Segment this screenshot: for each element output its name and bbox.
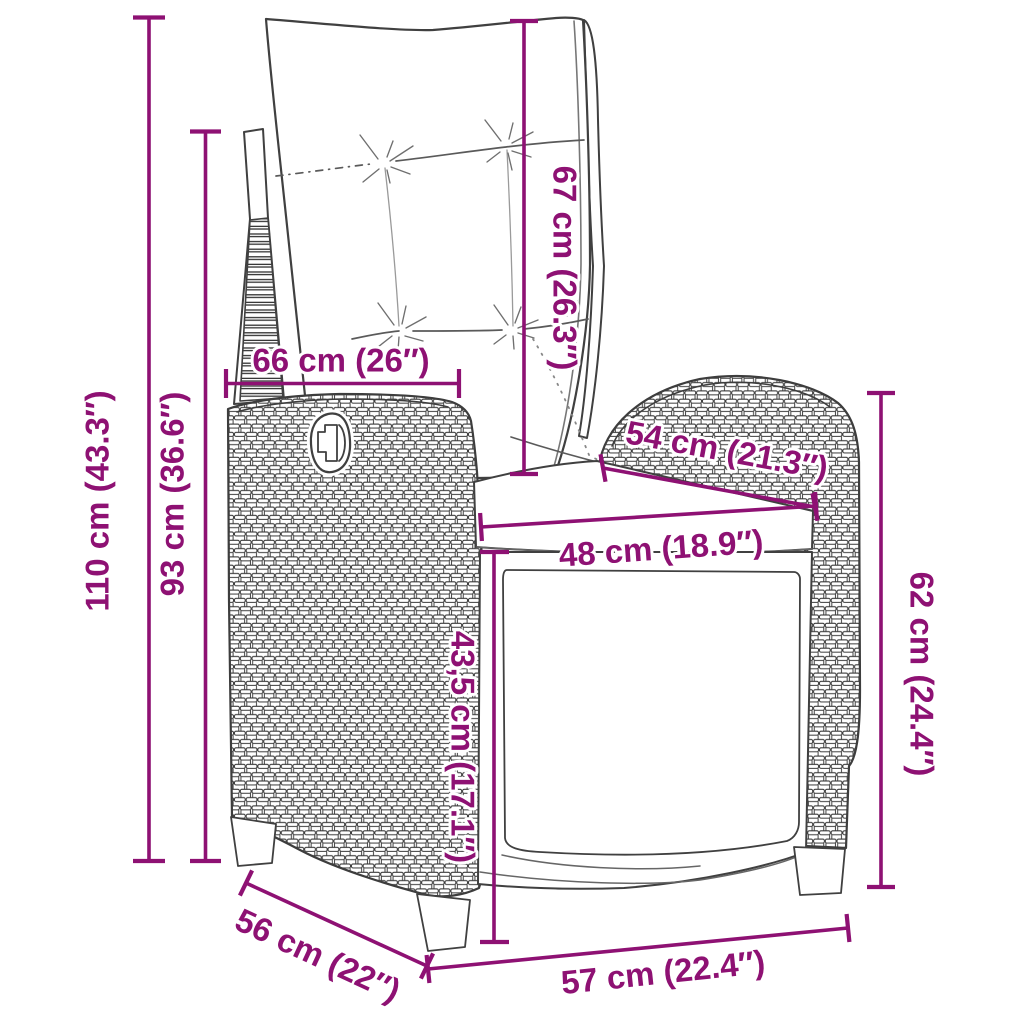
- svg-text:62 cm (24.4″): 62 cm (24.4″): [904, 572, 941, 777]
- svg-text:93 cm (36.6″): 93 cm (36.6″): [154, 392, 191, 597]
- svg-text:43,5 cm (17.1″): 43,5 cm (17.1″): [445, 631, 482, 863]
- svg-text:66 cm (26″): 66 cm (26″): [252, 342, 429, 379]
- svg-text:110 cm (43.3″): 110 cm (43.3″): [79, 390, 116, 611]
- svg-text:67 cm (26.3″): 67 cm (26.3″): [547, 166, 584, 371]
